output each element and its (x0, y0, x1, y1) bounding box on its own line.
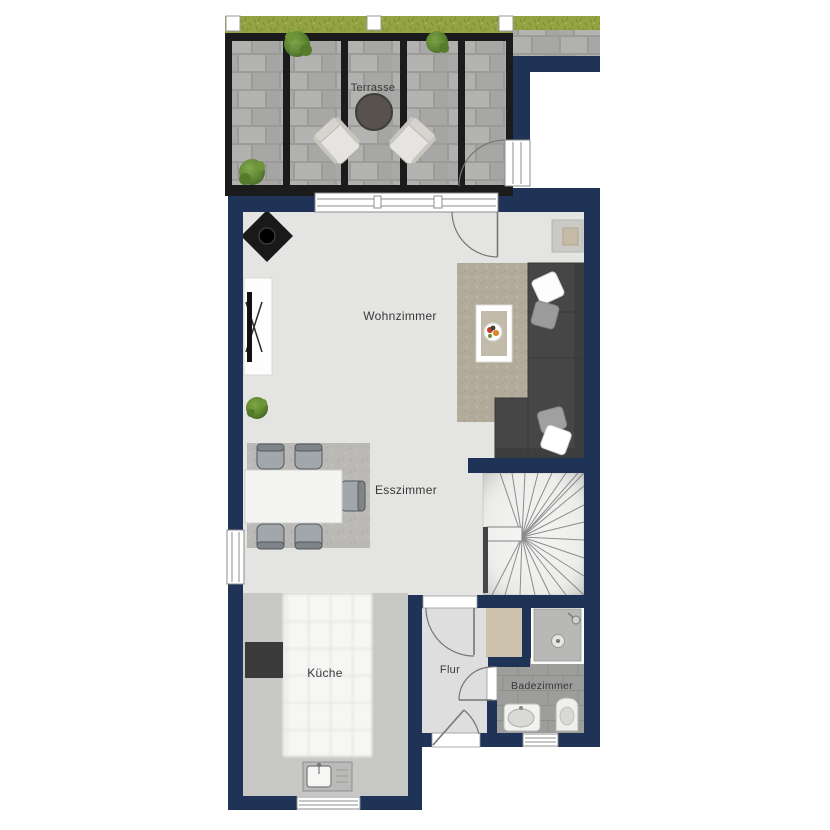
room-label-esszimmer: Esszimmer (375, 483, 437, 497)
pergola-beam (458, 41, 465, 185)
stone-path-right (513, 30, 600, 56)
pergola-beam (400, 41, 407, 185)
coffee-table (476, 305, 512, 362)
wall-bottom-kitchen-left (228, 796, 297, 810)
wall-left-lower (228, 584, 243, 810)
kitchen-sink-unit (303, 762, 352, 791)
chair-icon (295, 524, 322, 549)
room-label-badezimmer: Badezimmer (511, 680, 573, 692)
wall-alcove-bottom (513, 188, 600, 212)
room-label-terrasse: Terrasse (351, 82, 396, 94)
toilet (556, 698, 578, 731)
wall-bath-door-side (487, 700, 497, 733)
wall-bottom-kitchen-right (360, 796, 422, 810)
wall-kitchen-hall (408, 595, 422, 810)
staircase (483, 473, 584, 595)
dining-table (245, 470, 342, 523)
faucet-icon (519, 706, 523, 710)
living-room-window (315, 193, 498, 212)
tv-sideboard (244, 278, 272, 375)
chair-icon (257, 524, 284, 549)
bathroom-window (523, 734, 558, 746)
room-label-flur: Flur (440, 664, 460, 676)
bathroom-sink (504, 704, 540, 731)
wall-bath-horizontal (488, 657, 530, 667)
wall-hall-bottom-right (558, 733, 600, 747)
terrace-table (356, 94, 392, 130)
wall-stair-top (468, 458, 600, 473)
wall-shaft-box (552, 220, 583, 252)
room-label-kueche: Küche (307, 666, 343, 680)
tv-screen (247, 292, 252, 362)
room-label-wohnzimmer: Wohnzimmer (363, 309, 436, 323)
chair-icon (257, 444, 284, 469)
wall-bath-vertical (522, 608, 531, 658)
wall-hall-bottom-mid (480, 733, 523, 747)
bush-icon (239, 159, 265, 185)
kitchen-window (297, 797, 360, 809)
kitchen-counter-dark (245, 642, 283, 678)
wall-top-left (243, 196, 315, 212)
shower (531, 606, 584, 664)
wall-right (584, 212, 600, 747)
pergola-beam (283, 41, 290, 185)
floorplan-canvas: Terrasse Wohnzimmer Esszimmer Küche Flur… (0, 0, 830, 830)
floorplan-drawing: Terrasse Wohnzimmer Esszimmer Küche Flur… (0, 0, 830, 830)
hallway-closet-mat (486, 608, 522, 658)
wall-stair-bottom-right (477, 595, 600, 608)
dining-window (227, 530, 244, 584)
chair-icon (340, 481, 365, 511)
wall-alcove-vertical (513, 56, 530, 140)
wall-left-upper (228, 196, 243, 530)
wall-hall-bottom-left (422, 733, 432, 747)
plant-icon (246, 397, 268, 419)
chair-icon (295, 444, 322, 469)
dining-furniture (245, 443, 370, 549)
